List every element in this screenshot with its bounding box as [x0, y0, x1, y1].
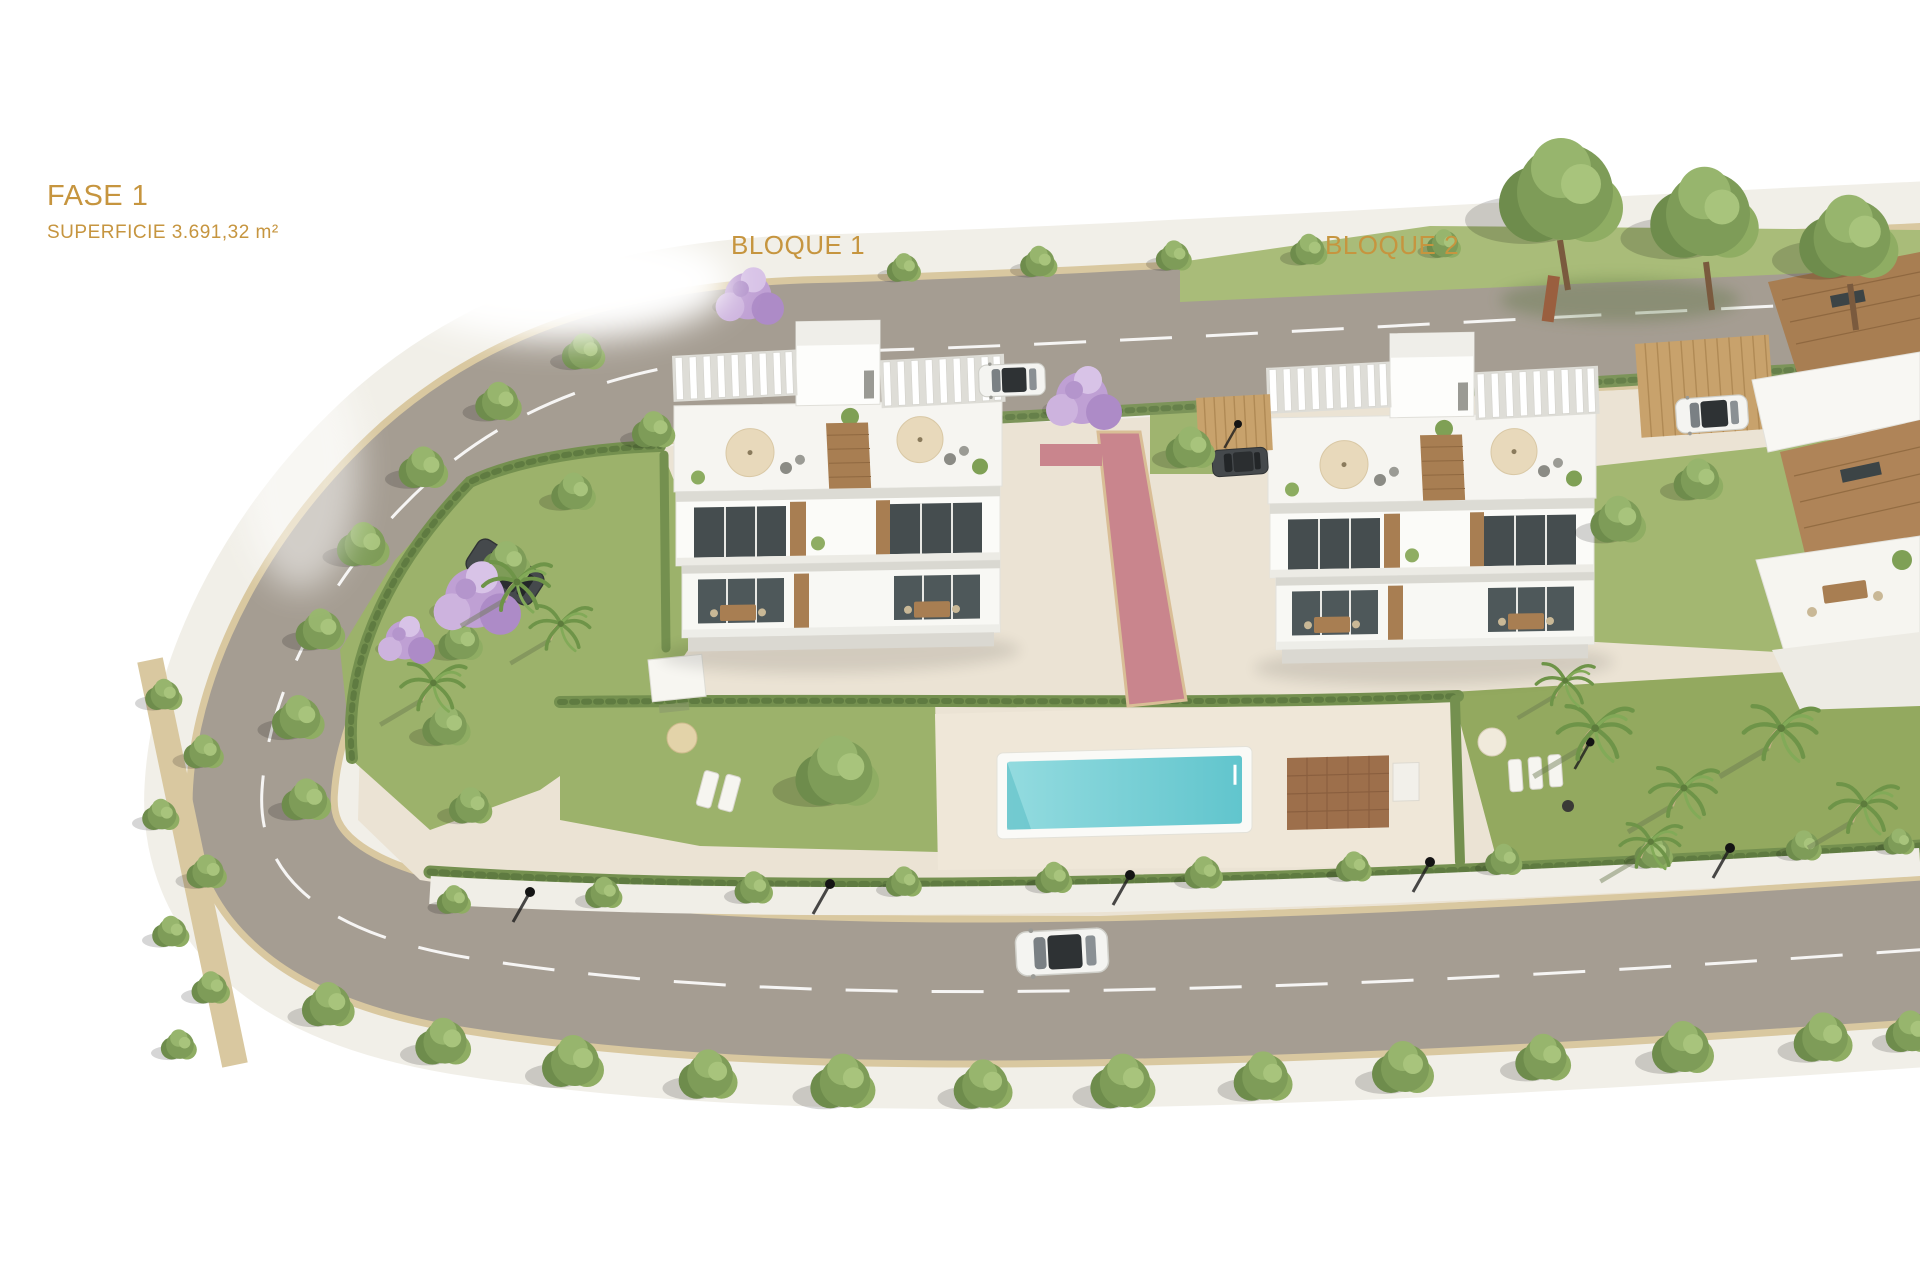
- garden-umbrella: [667, 723, 697, 753]
- render-fade: [390, 224, 730, 340]
- swimming-pool: [997, 746, 1252, 839]
- building-bloque-2: [1254, 330, 1614, 688]
- white-car-on-road: [1015, 924, 1110, 980]
- parked-white-car: [1675, 392, 1749, 437]
- site-plan-rendering: [0, 0, 1920, 1280]
- garden-umbrella: [1478, 728, 1506, 756]
- bloque-2-label: BLOQUE 2: [1325, 230, 1459, 261]
- render-fade: [240, 350, 360, 590]
- phase-title: FASE 1: [47, 180, 148, 213]
- parked-white-car: [978, 361, 1045, 400]
- parked-dark-car: [1211, 447, 1268, 477]
- bloque-1-label: BLOQUE 1: [731, 230, 865, 261]
- phase-surface-label: SUPERFICIE 3.691,32 m²: [47, 222, 279, 244]
- building-bloque-1: [660, 318, 1020, 676]
- masterplan-page: FASE 1 SUPERFICIE 3.691,32 m² BLOQUE 1 B…: [0, 0, 1920, 1280]
- pool-water: [1007, 756, 1242, 830]
